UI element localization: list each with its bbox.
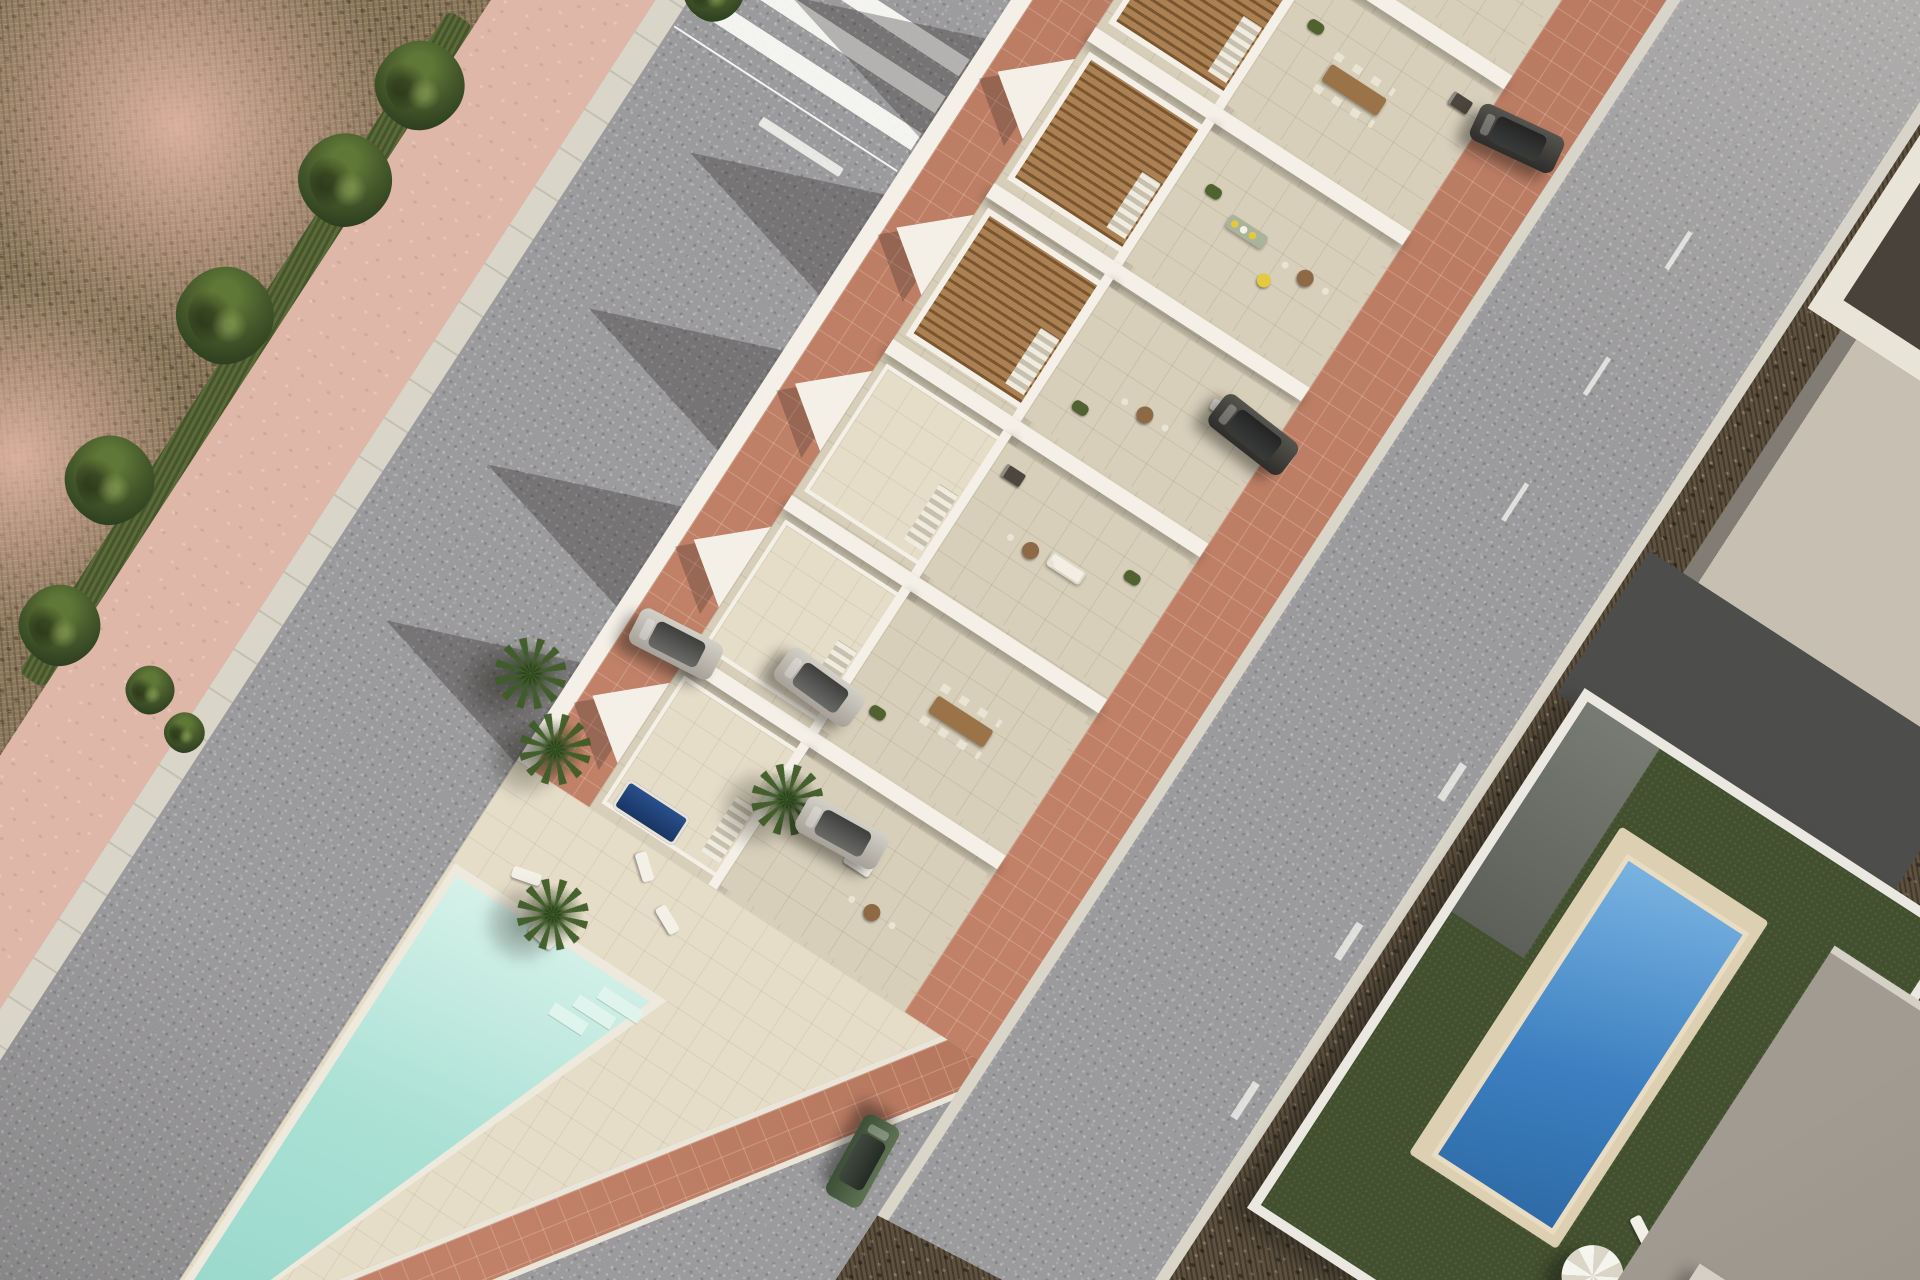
tilted-scene (0, 0, 1920, 1280)
tbl-r (860, 901, 884, 925)
plant (1203, 182, 1224, 201)
sun-lounger (634, 851, 654, 883)
bean (1254, 271, 1273, 290)
plant (1305, 17, 1326, 36)
sofa-w (1045, 551, 1087, 586)
bbq (1447, 91, 1473, 115)
sofa-g (1224, 213, 1269, 250)
tbl-r (1294, 266, 1318, 290)
aerial-development-render: Oblique aerial 3D render of a new-build … (0, 0, 1920, 1280)
tbl-r (1019, 539, 1043, 563)
bbq (1000, 464, 1026, 488)
plant (867, 703, 888, 722)
tbl-l (1321, 64, 1387, 117)
tbl-l (928, 695, 994, 748)
tbl-r (1133, 403, 1157, 427)
plant (1070, 398, 1091, 417)
plant (1122, 568, 1143, 587)
sun-lounger (655, 904, 681, 936)
